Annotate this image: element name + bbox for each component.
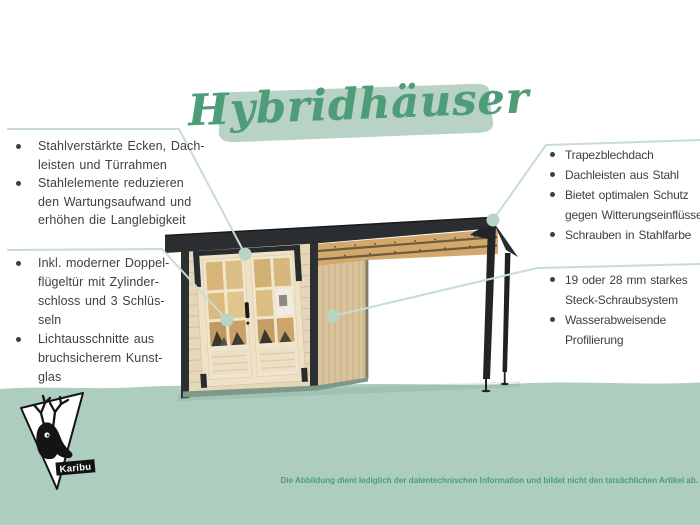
note-text: Trapezblechdach xyxy=(565,145,654,165)
note-text: Dachleisten aus Stahl xyxy=(565,165,679,185)
callout-dot-side-wall xyxy=(327,310,340,323)
infographic-canvas: Karibu Hybridhäuser Stahlverstärkte Ecke… xyxy=(0,0,700,525)
note-item: Bietet optimalen Schutz gegen Witterungs… xyxy=(550,185,700,225)
bullet-icon xyxy=(550,152,555,157)
bullet-icon xyxy=(550,192,555,197)
annotation-right-bottom: 19 oder 28 mm starkes Steck-Schraubsyste… xyxy=(550,270,700,350)
bullet-icon xyxy=(16,181,21,186)
note-text: Inkl. moderner Doppel- flügeltür mit Zyl… xyxy=(38,254,169,330)
bullet-icon xyxy=(550,172,555,177)
canopy-rear-post xyxy=(501,253,511,385)
callout-dot-door-glass xyxy=(221,314,234,327)
annotation-left-bottom: Inkl. moderner Doppel- flügeltür mit Zyl… xyxy=(16,254,201,387)
bullet-icon xyxy=(550,317,555,322)
bullet-icon xyxy=(16,261,21,266)
note-item: Dachleisten aus Stahl xyxy=(550,165,700,185)
callout-dot-roof-corner xyxy=(487,214,500,227)
bullet-icon xyxy=(550,232,555,237)
note-text: 19 oder 28 mm starkes Steck-Schraubsyste… xyxy=(565,270,688,310)
note-text: Stahlelemente reduzieren den Wartungsauf… xyxy=(38,174,191,230)
bullet-icon xyxy=(16,337,21,342)
note-item: Stahlverstärkte Ecken, Dach- leisten und… xyxy=(16,137,221,174)
disclaimer-text: Die Abbildung dient lediglich der datent… xyxy=(281,476,698,485)
callout-dot-door-frame xyxy=(239,248,252,261)
note-text: Schrauben in Stahlfarbe xyxy=(565,225,691,245)
note-item: Schrauben in Stahlfarbe xyxy=(550,225,700,245)
cabin-side-wall xyxy=(317,253,369,388)
note-text: Bietet optimalen Schutz gegen Witterungs… xyxy=(565,185,700,225)
note-item: 19 oder 28 mm starkes Steck-Schraubsyste… xyxy=(550,270,700,310)
note-text: Wasserabweisende Profilierung xyxy=(565,310,666,350)
double-door xyxy=(193,245,308,388)
bullet-icon xyxy=(550,277,555,282)
note-item: Inkl. moderner Doppel- flügeltür mit Zyl… xyxy=(16,254,201,330)
ground-band xyxy=(0,383,700,525)
note-item: Lichtausschnitte aus bruchsicherem Kunst… xyxy=(16,330,201,387)
steel-corner-trim-right xyxy=(310,242,318,389)
note-text: Lichtausschnitte aus bruchsicherem Kunst… xyxy=(38,330,163,387)
annotation-right-top: Trapezblechdach Dachleisten aus Stahl Bi… xyxy=(550,145,700,245)
annotation-left-top: Stahlverstärkte Ecken, Dach- leisten und… xyxy=(16,137,221,230)
note-item: Stahlelemente reduzieren den Wartungsauf… xyxy=(16,174,221,230)
note-item: Wasserabweisende Profilierung xyxy=(550,310,700,350)
note-text: Stahlverstärkte Ecken, Dach- leisten und… xyxy=(38,137,205,174)
bullet-icon xyxy=(16,144,21,149)
note-item: Trapezblechdach xyxy=(550,145,700,165)
